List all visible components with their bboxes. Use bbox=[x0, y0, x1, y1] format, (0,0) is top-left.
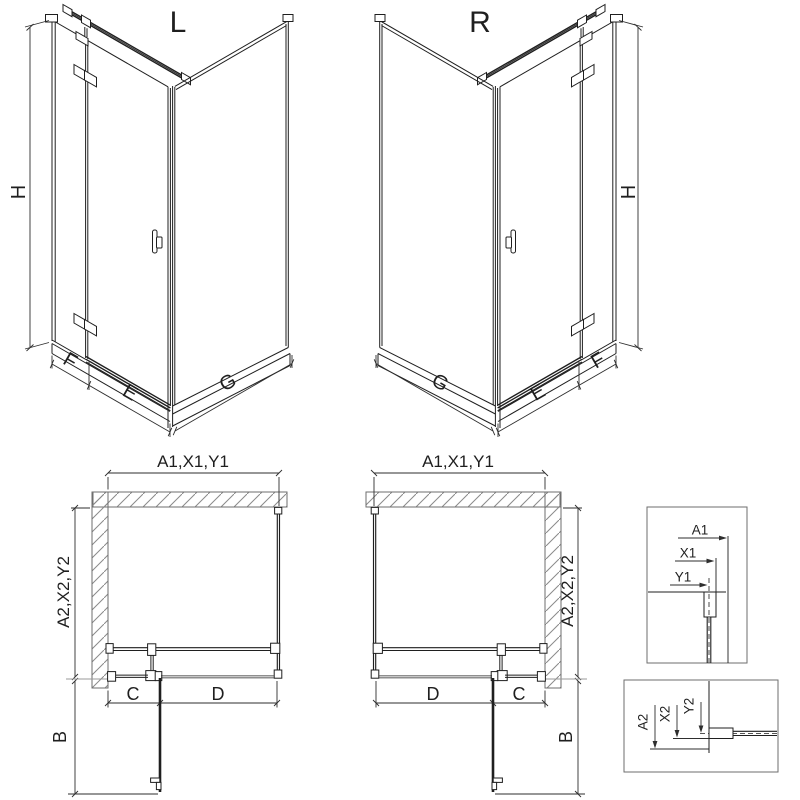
plan-view-right: A1,X1,Y1 A2,X2,Y2 C D B bbox=[366, 452, 587, 797]
detail-label-x2: X2 bbox=[658, 706, 673, 723]
diagram-page: L H F E G R H F E G A1,X1,Y1 A2,X2,Y2 C … bbox=[0, 0, 800, 800]
variant-title-right: R bbox=[469, 6, 491, 39]
detail-label-x1: X1 bbox=[680, 546, 697, 561]
detail-inset-depth: A2 X2 Y2 bbox=[624, 680, 778, 772]
dim-label-height-left: H bbox=[8, 185, 30, 199]
diagram-canvas: L H F E G R H F E G A1,X1,Y1 A2,X2,Y2 C … bbox=[0, 0, 800, 800]
iso-view-right: R H F E G bbox=[374, 5, 643, 438]
detail-inset-width: A1 X1 Y1 bbox=[647, 507, 747, 663]
dim-label-width-right: A1,X1,Y1 bbox=[422, 452, 494, 471]
iso-right-drawing bbox=[374, 5, 643, 438]
dim-label-d-right: D bbox=[427, 684, 440, 704]
dim-label-width-left: A1,X1,Y1 bbox=[157, 452, 229, 471]
dim-label-b-left: B bbox=[50, 731, 70, 743]
dim-label-c-left: C bbox=[127, 684, 140, 704]
dim-label-c-right: C bbox=[513, 684, 526, 704]
iso-left-drawing bbox=[25, 5, 294, 438]
dim-label-depth-right: A2,X2,Y2 bbox=[558, 555, 577, 627]
detail-label-y1: Y1 bbox=[675, 570, 692, 585]
detail-label-y2: Y2 bbox=[682, 698, 697, 715]
detail-label-a2: A2 bbox=[636, 714, 651, 731]
variant-title-left: L bbox=[170, 6, 187, 39]
iso-view-left: L H F E G bbox=[8, 5, 294, 438]
detail-label-a1: A1 bbox=[692, 523, 709, 538]
wall-left-plan bbox=[92, 492, 287, 688]
dim-label-height-right: H bbox=[618, 185, 640, 199]
dim-label-depth-left: A2,X2,Y2 bbox=[54, 556, 73, 628]
plan-view-left: A1,X1,Y1 A2,X2,Y2 C D B bbox=[50, 452, 287, 797]
wall-right-plan bbox=[366, 492, 561, 688]
dim-label-d-left: D bbox=[212, 684, 225, 704]
dim-label-b-right: B bbox=[556, 731, 576, 743]
